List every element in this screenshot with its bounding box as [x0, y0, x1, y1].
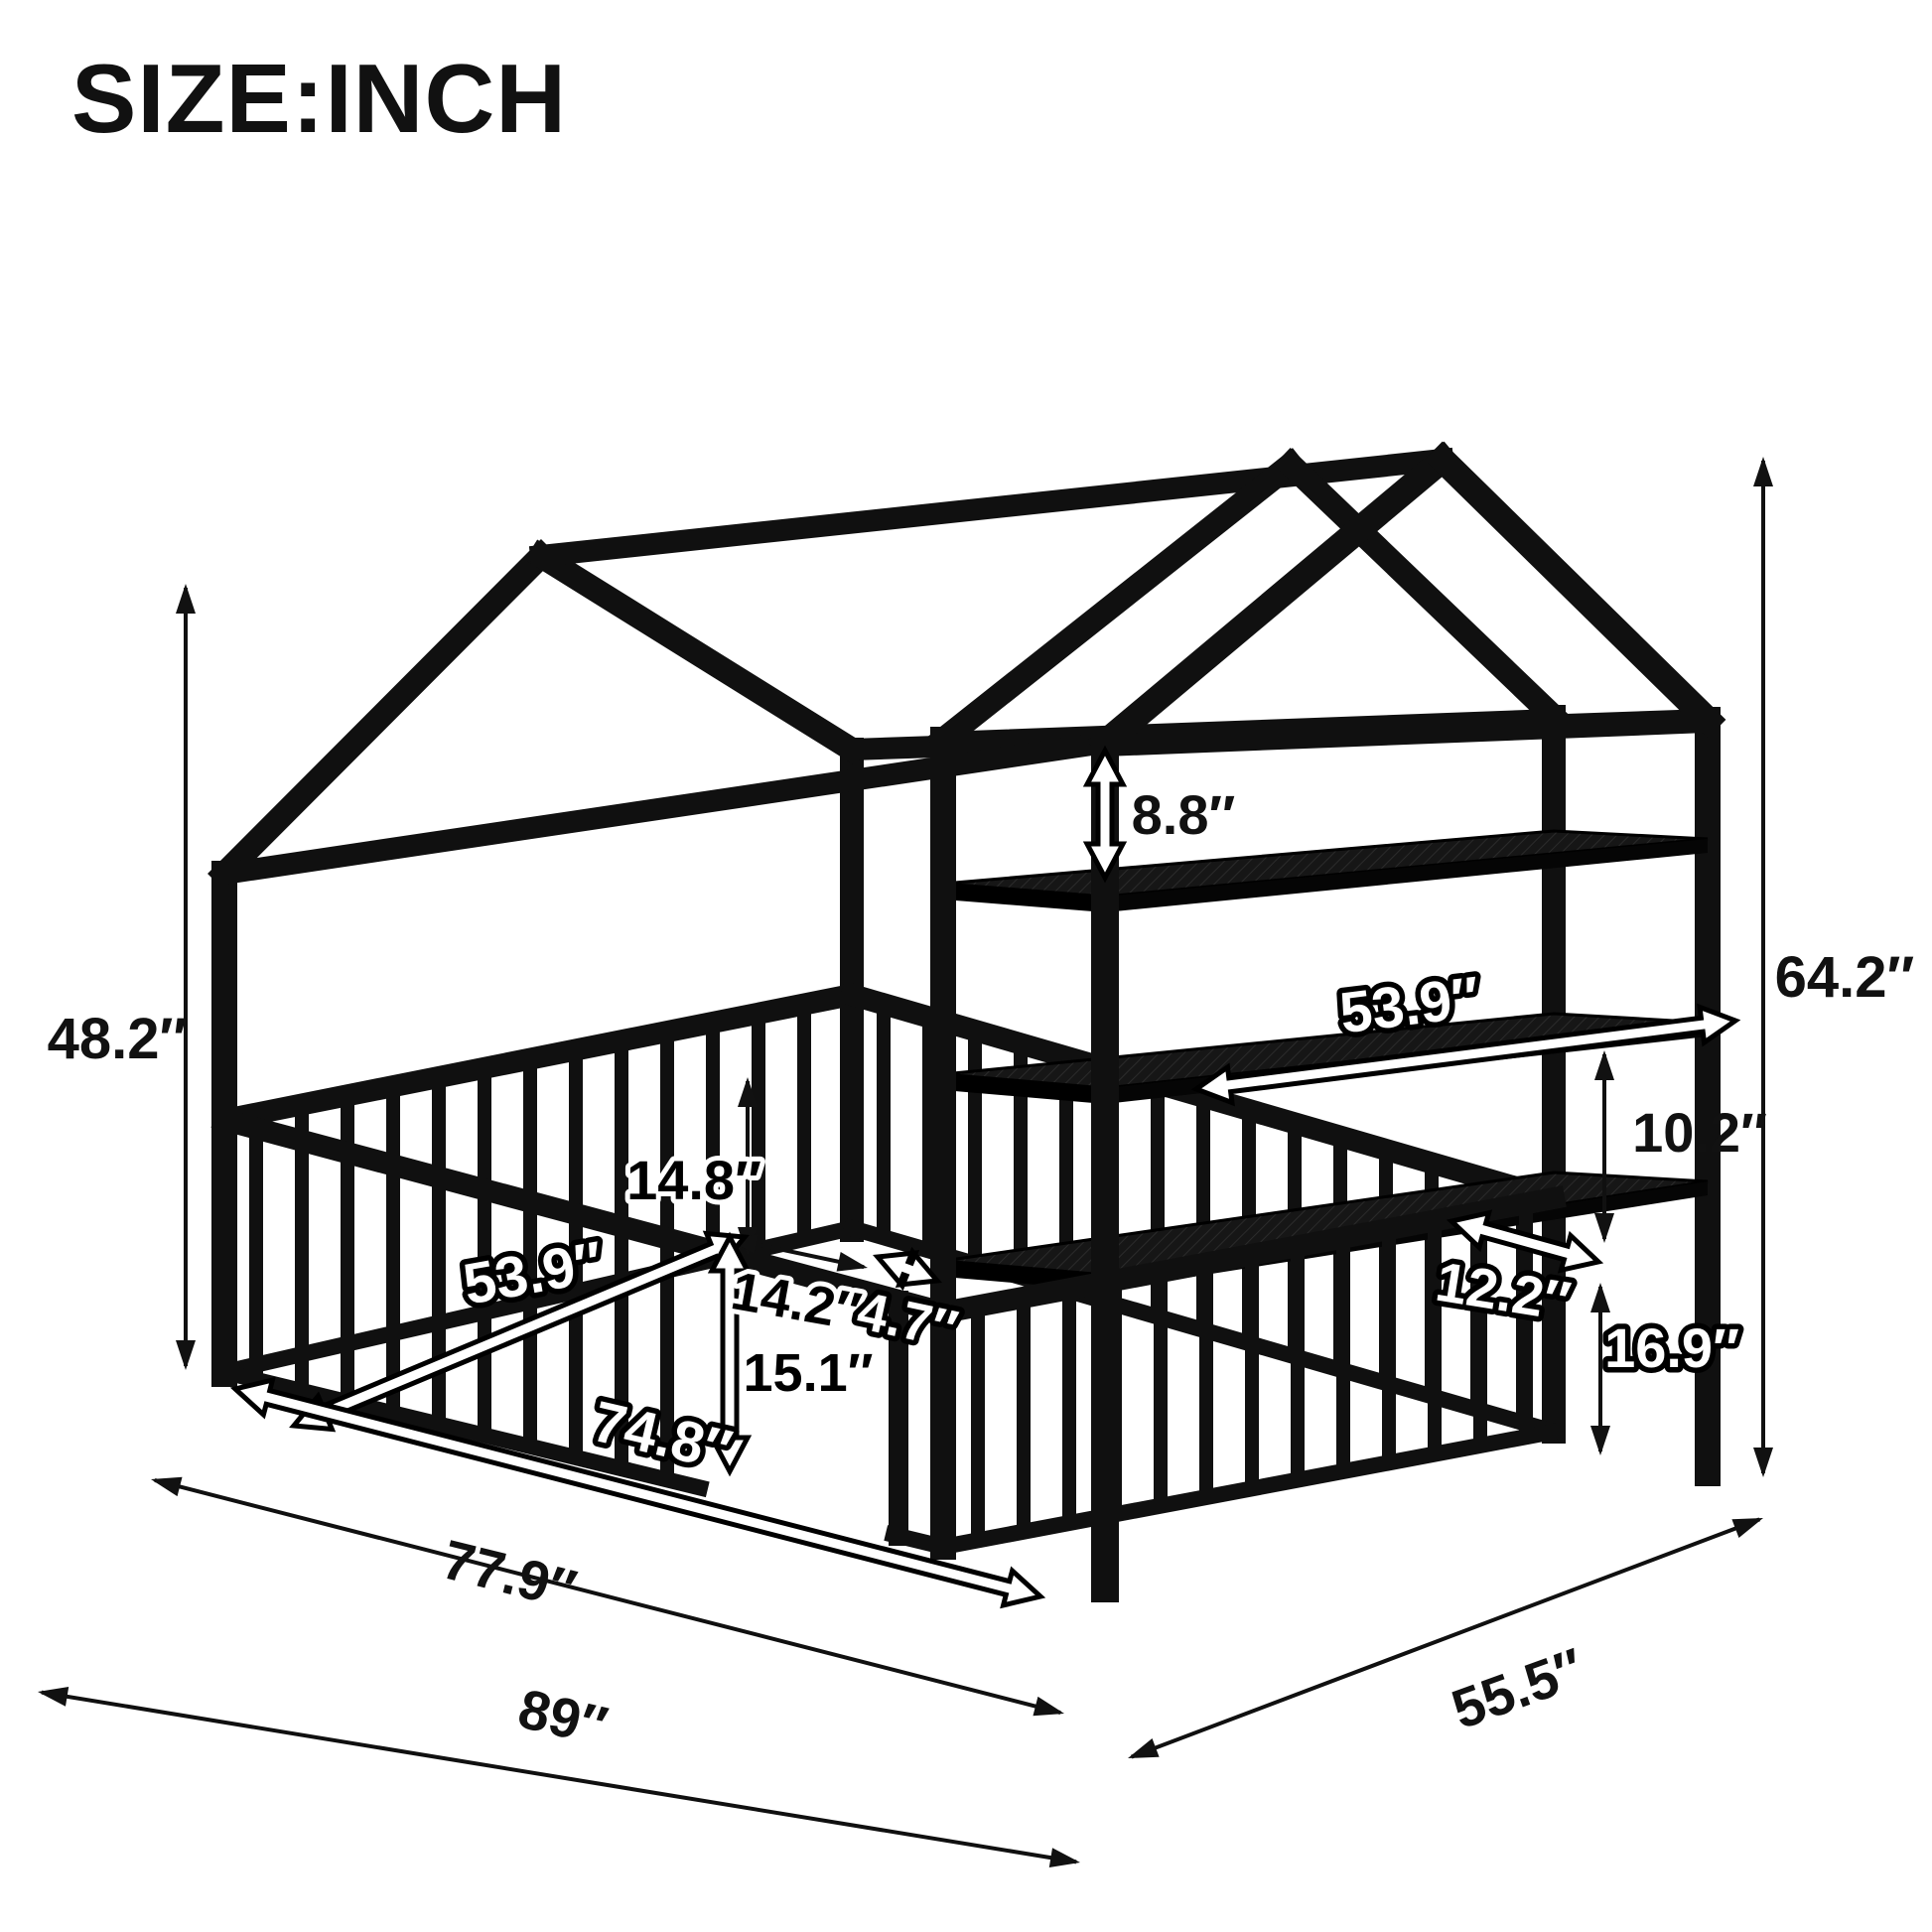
- dim-overall-height-64-2-head: [1753, 457, 1773, 486]
- dim-label-wall-height: 48.2″: [48, 1007, 188, 1071]
- dim-shelf-gap-10-2-head: [1594, 1213, 1614, 1243]
- dim-wall-height-48-2-head: [176, 1340, 196, 1370]
- bed-frame-dimension-diagram: SIZE:INCH 48.2″ 64.2″ 8.8″ 53.9″ 10.2″ 1…: [0, 0, 1932, 1932]
- dim-overall-width-55-5: [1134, 1520, 1758, 1756]
- dim-shelf-to-rail-16-9-head: [1590, 1283, 1610, 1312]
- inner-gable-right-slope: [1291, 465, 1554, 717]
- dim-wall-height-48-2-head: [176, 584, 196, 614]
- outer-gable-right-slope: [1443, 460, 1708, 720]
- size-diagram-page: SIZE:INCH 48.2″ 64.2″ 8.8″ 53.9″ 10.2″ 1…: [0, 0, 1932, 1932]
- dim-label-rail-height: 14.8″: [626, 1149, 761, 1211]
- dim-label-overall-width: 55.5″: [1444, 1636, 1591, 1741]
- dim-shelf-gap-10-2-head: [1594, 1050, 1614, 1080]
- dim-frame-length-77-9-head: [151, 1477, 183, 1496]
- dim-label-roof-to-top-shelf: 8.8″: [1132, 783, 1236, 846]
- dim-shelf-to-rail-16-9-head: [1590, 1426, 1610, 1455]
- dim-overall-width-55-5-head: [1731, 1518, 1763, 1538]
- dim-overall-width-55-5-head: [1128, 1738, 1160, 1758]
- dim-frame-length-77-9: [157, 1480, 1058, 1712]
- dim-overall-length-89-head: [38, 1687, 69, 1707]
- dim-overall-length-89-head: [1049, 1848, 1080, 1867]
- dim-label-frame-length: 77.9″: [437, 1528, 583, 1621]
- dim-label-gate-width: 14.2″: [727, 1261, 865, 1342]
- dim-label-shelf-to-rail: 16.9″: [1604, 1316, 1739, 1379]
- dim-label-overall-height: 64.2″: [1775, 945, 1915, 1010]
- dim-label-overall-length: 89″: [513, 1677, 614, 1757]
- page-title: SIZE:INCH: [71, 44, 567, 153]
- dim-label-shelf-gap: 10.2″: [1632, 1101, 1767, 1164]
- near-eave-beam: [224, 743, 1105, 874]
- dim-label-gate-height: 15.1″: [744, 1343, 874, 1403]
- outer-gable-left-slope: [1105, 460, 1443, 743]
- dim-overall-height-64-2-head: [1753, 1448, 1773, 1477]
- dim-frame-length-77-9-head: [1033, 1697, 1064, 1716]
- rear-gable-right-slope: [541, 556, 852, 750]
